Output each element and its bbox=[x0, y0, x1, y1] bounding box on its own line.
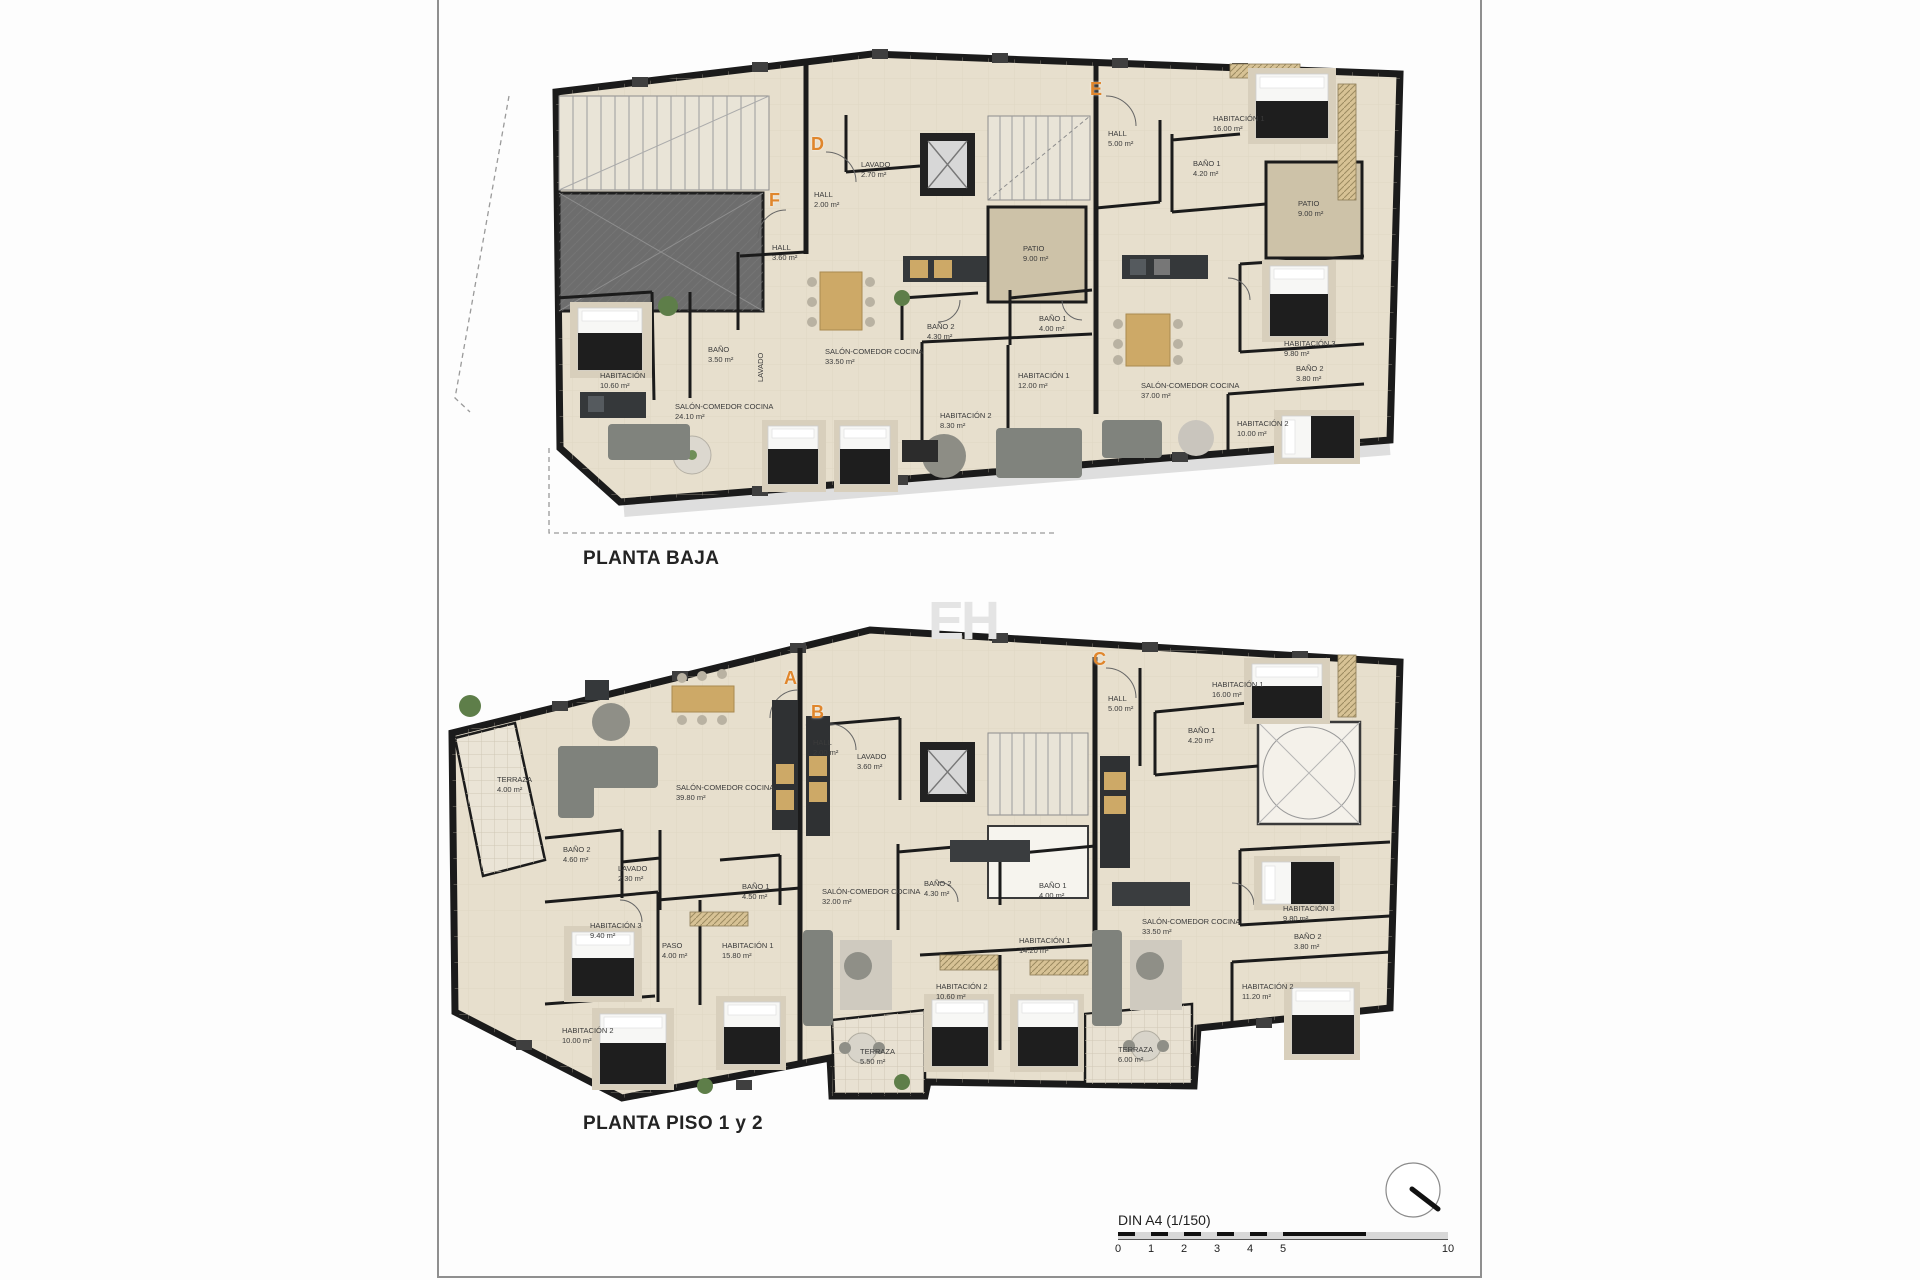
property-line-dashed bbox=[455, 96, 509, 412]
bed bbox=[762, 420, 826, 492]
unit-letter-a: A bbox=[784, 668, 797, 689]
room-label: LAVADO bbox=[756, 353, 766, 382]
sofa bbox=[803, 930, 833, 1026]
unit-letter-c: C bbox=[1093, 649, 1106, 670]
room-label: BAÑO 1 4.20 m² bbox=[1193, 159, 1221, 179]
plant bbox=[697, 1078, 713, 1094]
scale-tick: 3 bbox=[1214, 1243, 1220, 1255]
room-label: PATIO 9.00 m² bbox=[1298, 199, 1323, 219]
room-label: HABITACIÓN 3 9.80 m² bbox=[1284, 339, 1336, 359]
room-label: LAVADO 3.60 m² bbox=[857, 752, 886, 772]
room-label: HABITACIÓN 1 14.20 m² bbox=[1019, 936, 1071, 956]
room-label: HABITACIÓN 3 9.40 m² bbox=[590, 921, 642, 941]
scale-tick: 5 bbox=[1280, 1243, 1286, 1255]
sofa bbox=[1102, 420, 1162, 458]
room-label: HABITACIÓN 1 16.00 m² bbox=[1212, 680, 1264, 700]
elevator bbox=[920, 742, 975, 802]
lightwell bbox=[1258, 722, 1360, 824]
room-label: LAVADO 2.70 m² bbox=[861, 160, 890, 180]
bed bbox=[592, 1008, 674, 1090]
room-label: BAÑO 2 4.30 m² bbox=[924, 879, 952, 899]
unit-letter-f: F bbox=[769, 190, 780, 211]
room-label: BAÑO 1 4.00 m² bbox=[1039, 314, 1067, 334]
unit-letter-e: E bbox=[1090, 79, 1102, 100]
room-label: LAVADO 2.30 m² bbox=[618, 864, 647, 884]
room-label: SALÓN-COMEDOR COCINA 37.00 m² bbox=[1141, 381, 1239, 401]
bed bbox=[570, 302, 652, 378]
sofa bbox=[1092, 930, 1122, 1026]
room-label: HALL 5.00 m² bbox=[1108, 129, 1133, 149]
room-label: HABITACIÓN 1 15.80 m² bbox=[722, 941, 774, 961]
room-label: HALL 3.60 m² bbox=[772, 243, 797, 263]
scale-tick: 1 bbox=[1148, 1243, 1154, 1255]
room-label: BAÑO 2 4.60 m² bbox=[563, 845, 591, 865]
dining-table bbox=[820, 272, 862, 330]
room-label: HABITACIÓN 2 10.00 m² bbox=[562, 1026, 614, 1046]
scale-track bbox=[1118, 1232, 1448, 1240]
round-rug bbox=[592, 703, 630, 741]
round-rug bbox=[1178, 420, 1214, 456]
room-label: PATIO 9.00 m² bbox=[1023, 244, 1048, 264]
bed bbox=[1254, 856, 1340, 910]
room-label: BAÑO 2 3.80 m² bbox=[1296, 364, 1324, 384]
scale-tick: 4 bbox=[1247, 1243, 1253, 1255]
room-label: HALL 2.00 m² bbox=[814, 190, 839, 210]
garage-ramp bbox=[559, 193, 763, 311]
room-label: SALÓN-COMEDOR COCINA 39.80 m² bbox=[676, 783, 774, 803]
unit-letter-b: B bbox=[811, 702, 824, 723]
watermark-logo: EH bbox=[928, 590, 997, 652]
room-label: TERRAZA 6.00 m² bbox=[1118, 1045, 1153, 1065]
core-stairs bbox=[988, 733, 1088, 898]
dining-table bbox=[1126, 314, 1170, 366]
room-label: HABITACIÓN 2 11.20 m² bbox=[1242, 982, 1294, 1002]
room-label: BAÑO 1 4.00 m² bbox=[1039, 881, 1067, 901]
core-stairs bbox=[988, 116, 1090, 200]
unit-letter-d: D bbox=[811, 134, 824, 155]
plant bbox=[894, 290, 910, 306]
dining-table bbox=[672, 686, 734, 712]
room-label: HALL 2.00 m² bbox=[813, 738, 838, 758]
plan-title: PLANTA PISO 1 y 2 bbox=[583, 1113, 763, 1135]
scale-ticks: 01234510 bbox=[1118, 1243, 1448, 1257]
scale-tick: 0 bbox=[1115, 1243, 1121, 1255]
room-label: HABITACIÓN 1 16.00 m² bbox=[1213, 114, 1265, 134]
room-label: BAÑO 1 4.50 m² bbox=[742, 882, 770, 902]
plant bbox=[894, 1074, 910, 1090]
round-rug bbox=[1136, 952, 1164, 980]
room-label: HABITACIÓN 1 12.00 m² bbox=[1018, 371, 1070, 391]
room-label: TERRAZA 5.50 m² bbox=[860, 1047, 895, 1067]
room-label: TERRAZA 4.00 m² bbox=[497, 775, 532, 795]
sheet: EH PLANTA BAJADEFHALL 2.00 m²LAVADO 2.70… bbox=[0, 0, 1920, 1280]
room-label: SALÓN-COMEDOR COCINA 24.10 m² bbox=[675, 402, 773, 422]
room-label: HABITACIÓN 2 10.00 m² bbox=[1237, 419, 1289, 439]
bed bbox=[1262, 260, 1336, 342]
stairs bbox=[559, 96, 769, 190]
room-label: HABITACIÓN 3 9.80 m² bbox=[1283, 904, 1335, 924]
room-label: HABITACIÓN 2 8.30 m² bbox=[940, 411, 992, 431]
elevator bbox=[920, 133, 975, 196]
room-label: HABITACIÓN 10.60 m² bbox=[600, 371, 645, 391]
bed bbox=[1284, 982, 1360, 1060]
room-label: HALL 5.00 m² bbox=[1108, 694, 1133, 714]
room-label: BAÑO 3.50 m² bbox=[708, 345, 733, 365]
bed bbox=[716, 996, 786, 1070]
north-arrow-icon bbox=[1378, 1155, 1448, 1225]
room-label: SALÓN-COMEDOR COCINA 33.50 m² bbox=[1142, 917, 1240, 937]
room-label: HABITACIÓN 2 10.60 m² bbox=[936, 982, 988, 1002]
room-label: BAÑO 1 4.20 m² bbox=[1188, 726, 1216, 746]
room-label: SALÓN-COMEDOR COCINA 33.50 m² bbox=[825, 347, 923, 367]
round-rug bbox=[844, 952, 872, 980]
room-label: SALÓN-COMEDOR COCINA 32.00 m² bbox=[822, 887, 920, 907]
coffee-table bbox=[902, 440, 938, 462]
plan-title: PLANTA BAJA bbox=[583, 548, 719, 570]
plant bbox=[658, 296, 678, 316]
scale-tick: 10 bbox=[1442, 1243, 1454, 1255]
plant bbox=[459, 695, 481, 717]
sofa bbox=[608, 424, 690, 460]
bed bbox=[1010, 994, 1084, 1072]
room-label: PASO 4.00 m² bbox=[662, 941, 687, 961]
sofa bbox=[996, 428, 1082, 478]
room-label: BAÑO 2 4.30 m² bbox=[927, 322, 955, 342]
room-label: BAÑO 2 3.80 m² bbox=[1294, 932, 1322, 952]
bed bbox=[834, 420, 898, 492]
scale-tick: 2 bbox=[1181, 1243, 1187, 1255]
sofa-chaise bbox=[558, 746, 594, 818]
bed bbox=[924, 994, 994, 1072]
